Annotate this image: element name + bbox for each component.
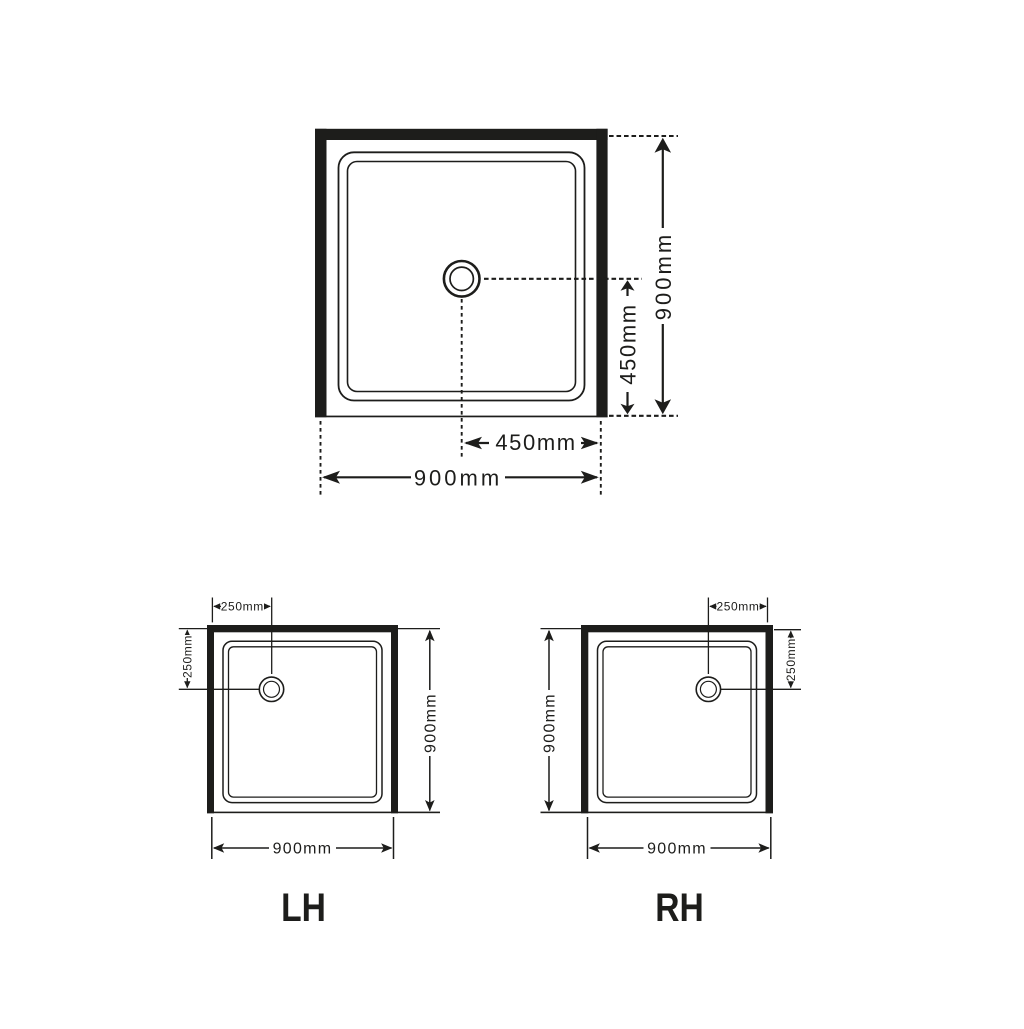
- svg-text:250mm: 250mm: [221, 600, 264, 614]
- svg-text:900mm: 900mm: [414, 465, 502, 490]
- svg-text:250mm: 250mm: [784, 638, 798, 681]
- svg-text:900mm: 900mm: [647, 841, 707, 858]
- svg-text:900mm: 900mm: [542, 693, 559, 753]
- svg-text:900mm: 900mm: [273, 841, 333, 858]
- svg-text:LH: LH: [281, 885, 326, 929]
- svg-text:450mm: 450mm: [616, 303, 641, 384]
- svg-text:900mm: 900mm: [651, 232, 676, 320]
- svg-text:450mm: 450mm: [495, 430, 576, 455]
- svg-text:900mm: 900mm: [423, 693, 440, 753]
- svg-text:250mm: 250mm: [181, 635, 195, 678]
- svg-text:250mm: 250mm: [716, 600, 759, 614]
- svg-text:RH: RH: [655, 885, 704, 929]
